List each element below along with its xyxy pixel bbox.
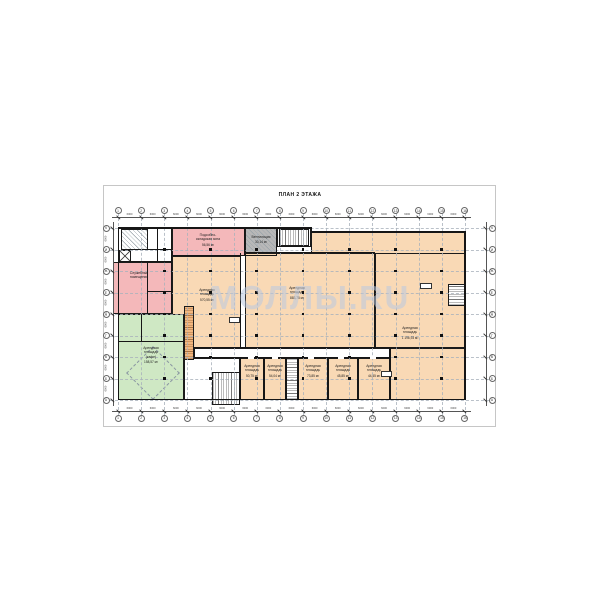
label-unit2: Арендная площадь 54,04 м²	[264, 364, 286, 378]
column-mark	[255, 291, 258, 294]
door-gap	[338, 356, 344, 358]
grid-bubble-bottom: 12	[369, 415, 376, 422]
wall	[118, 227, 119, 400]
room-rent-right-low	[390, 348, 465, 400]
wall	[311, 231, 466, 232]
dim-value: 6000	[105, 317, 108, 331]
dim-value: 6000	[308, 407, 322, 410]
dim-value: 6000	[192, 213, 206, 216]
grid-bubble-top: 9	[300, 207, 307, 214]
dim-value: 6000	[423, 213, 437, 216]
column-mark	[440, 356, 443, 359]
door-gap	[248, 356, 254, 358]
grid-bubble-top: 3	[161, 207, 168, 214]
grid-bubble-right: А	[489, 397, 496, 404]
grid-bubble-bottom: 1	[115, 415, 122, 422]
label-rent-center: Арендная площадь 883,75 м²	[279, 286, 315, 300]
grid-bubble-bottom: 10	[323, 415, 330, 422]
door-box	[420, 283, 432, 289]
dim-value: 6000	[123, 407, 137, 410]
dim-value: 6000	[377, 213, 391, 216]
label-rent-left: Арендная площадь 570,55 м²	[189, 288, 225, 302]
wall	[172, 255, 277, 256]
dim-value: 6000	[146, 213, 160, 216]
grid-bubble-top: 2	[138, 207, 145, 214]
dim-value: 6000	[354, 213, 368, 216]
column-mark	[209, 248, 212, 251]
grid-bubble-left: Ж	[103, 268, 110, 275]
grid-bubble-bottom: 4	[184, 415, 191, 422]
grid-bubble-bottom: 2	[138, 415, 145, 422]
door-box	[229, 317, 240, 323]
column-mark	[348, 291, 351, 294]
grid-bubble-right: Б	[489, 375, 496, 382]
column-mark	[255, 334, 258, 337]
column-mark	[302, 248, 305, 251]
column-mark	[440, 334, 443, 337]
column-mark	[163, 377, 166, 380]
wall	[118, 341, 184, 342]
label-unit1: Арендная площадь 50,75 м²	[241, 364, 263, 378]
dim-value: 6000	[105, 231, 108, 245]
dim-value: 6000	[308, 213, 322, 216]
grid-bubble-left: К	[103, 225, 110, 232]
wall	[240, 253, 241, 348]
grid-bubble-left: Д	[103, 311, 110, 318]
grid-bubble-top: 5	[207, 207, 214, 214]
wall	[171, 228, 172, 314]
door-gap	[272, 356, 278, 358]
wall	[194, 357, 390, 358]
wall	[118, 261, 172, 262]
column-mark	[348, 248, 351, 251]
grid-bubble-top: 1	[115, 207, 122, 214]
plan-drawing: Подсобно- складская зона 56,56 м² Вентил…	[0, 0, 600, 600]
dim-value: 6000	[169, 213, 183, 216]
label-unit5: Арендная площадь 44,45 м²	[363, 364, 385, 378]
column-mark	[348, 334, 351, 337]
grid-bubble-bottom: 3	[161, 415, 168, 422]
grid-bubble-bottom: 9	[300, 415, 307, 422]
wall	[277, 246, 311, 247]
dim-value: 6000	[105, 296, 108, 310]
dim-value: 6000	[105, 360, 108, 374]
grid-bubble-bottom: 8	[276, 415, 283, 422]
column-mark	[394, 291, 397, 294]
dim-value: 6000	[238, 407, 252, 410]
grid-bubble-left: В	[103, 354, 110, 361]
grid-bubble-bottom: 7	[253, 415, 260, 422]
column-mark	[348, 356, 351, 359]
grid-bubble-right: И	[489, 246, 496, 253]
dim-value: 6000	[261, 407, 275, 410]
dim-value: 6000	[261, 213, 275, 216]
column-mark	[255, 248, 258, 251]
grid-bubble-left: А	[103, 397, 110, 404]
column-mark	[255, 356, 258, 359]
dim-value: 6000	[215, 407, 229, 410]
escalator-top-icon	[279, 229, 309, 246]
dim-value: 6000	[284, 213, 298, 216]
grid-bubble-right: К	[489, 225, 496, 232]
grid-bubble-right: Ж	[489, 268, 496, 275]
column-mark	[440, 377, 443, 380]
floor-plan-page: ПЛАН 2 ЭТАЖА	[0, 0, 600, 600]
column-mark	[394, 313, 397, 316]
label-storage: Подсобно- складская зона 56,56 м²	[190, 233, 226, 247]
column-mark	[348, 270, 351, 273]
wall	[327, 358, 328, 400]
column-mark	[209, 356, 212, 359]
dim-value: 6000	[377, 407, 391, 410]
grid-bubble-right: Г	[489, 332, 496, 339]
wall	[118, 227, 312, 228]
elevator-icon	[119, 250, 131, 262]
column-mark	[394, 248, 397, 251]
dim-value: 6000	[331, 407, 345, 410]
grid-bubble-bottom: 14	[415, 415, 422, 422]
label-unit4: Арендная площадь 45,85 м²	[332, 364, 354, 378]
column-mark	[394, 377, 397, 380]
room-rent-center	[245, 253, 375, 348]
grid-bubble-right: В	[489, 354, 496, 361]
label-rent-right: Арендная площадь 1 196,93 м²	[392, 326, 428, 340]
wall	[297, 358, 298, 400]
wall	[147, 291, 172, 292]
wall	[148, 249, 172, 250]
column-mark	[440, 313, 443, 316]
grid-bubble-right: Д	[489, 311, 496, 318]
column-mark	[163, 313, 166, 316]
grid-bubble-top: 11	[346, 207, 353, 214]
column-mark	[255, 313, 258, 316]
dim-value: 6000	[354, 407, 368, 410]
column-mark	[440, 291, 443, 294]
label-vent: Вентиляция 30,14 м²	[243, 235, 279, 245]
wall	[118, 399, 466, 400]
column-mark	[394, 356, 397, 359]
label-unit3: Арендная площадь 73,85 м²	[302, 364, 324, 378]
column-mark	[209, 377, 212, 380]
dim-value: 6000	[400, 407, 414, 410]
grid-bubble-top: 4	[184, 207, 191, 214]
dim-value: 6000	[105, 253, 108, 267]
dim-value: 6000	[423, 407, 437, 410]
column-mark	[440, 270, 443, 273]
label-service: Служебные помещения	[121, 271, 157, 280]
dim-value: 6000	[169, 407, 183, 410]
column-mark	[209, 334, 212, 337]
grid-bubble-top: 12	[369, 207, 376, 214]
column-mark	[163, 270, 166, 273]
wall	[357, 358, 358, 400]
column-mark	[394, 270, 397, 273]
wall	[194, 347, 390, 348]
wall	[464, 231, 465, 400]
column-mark	[302, 270, 305, 273]
dim-value: 6000	[238, 213, 252, 216]
wall	[157, 228, 158, 262]
dim-value: 6000	[192, 407, 206, 410]
label-cafe: Арендная площадь (кафе) 158,57 м²	[133, 346, 169, 364]
dim-value: 6000	[284, 407, 298, 410]
column-mark	[302, 356, 305, 359]
column-mark	[163, 291, 166, 294]
dim-value: 6000	[331, 213, 345, 216]
door-gap	[308, 356, 314, 358]
column-mark	[302, 334, 305, 337]
plan-title: ПЛАН 2 ЭТАЖА	[103, 192, 497, 198]
grid-bubble-bottom: 13	[392, 415, 399, 422]
column-mark	[209, 270, 212, 273]
grid-bubble-bottom: 6	[230, 415, 237, 422]
column-mark	[302, 313, 305, 316]
grid-bubble-top: 10	[323, 207, 330, 214]
dim-value: 6000	[105, 382, 108, 396]
dim-value: 6000	[446, 407, 460, 410]
column-mark	[163, 334, 166, 337]
dim-value: 6000	[146, 407, 160, 410]
dim-value: 6000	[215, 213, 229, 216]
grid-bubble-bottom: 15	[438, 415, 445, 422]
column-mark	[163, 248, 166, 251]
dim-value: 6000	[446, 213, 460, 216]
grid-bubble-bottom: 11	[346, 415, 353, 422]
wall	[374, 253, 375, 348]
column-mark	[255, 270, 258, 273]
wall	[147, 262, 148, 314]
wall	[245, 252, 375, 253]
column-mark	[440, 248, 443, 251]
grid-bubble-right: Е	[489, 289, 496, 296]
stair-top-left	[121, 229, 148, 250]
dim-value: 6000	[123, 213, 137, 216]
dim-value: 6000	[400, 213, 414, 216]
grid-bubble-bottom: 5	[207, 415, 214, 422]
dim-value: 6000	[105, 339, 108, 353]
column-mark	[209, 313, 212, 316]
column-mark	[348, 313, 351, 316]
dim-value: 6000	[105, 274, 108, 288]
wall	[141, 314, 142, 342]
door-gap	[370, 356, 376, 358]
